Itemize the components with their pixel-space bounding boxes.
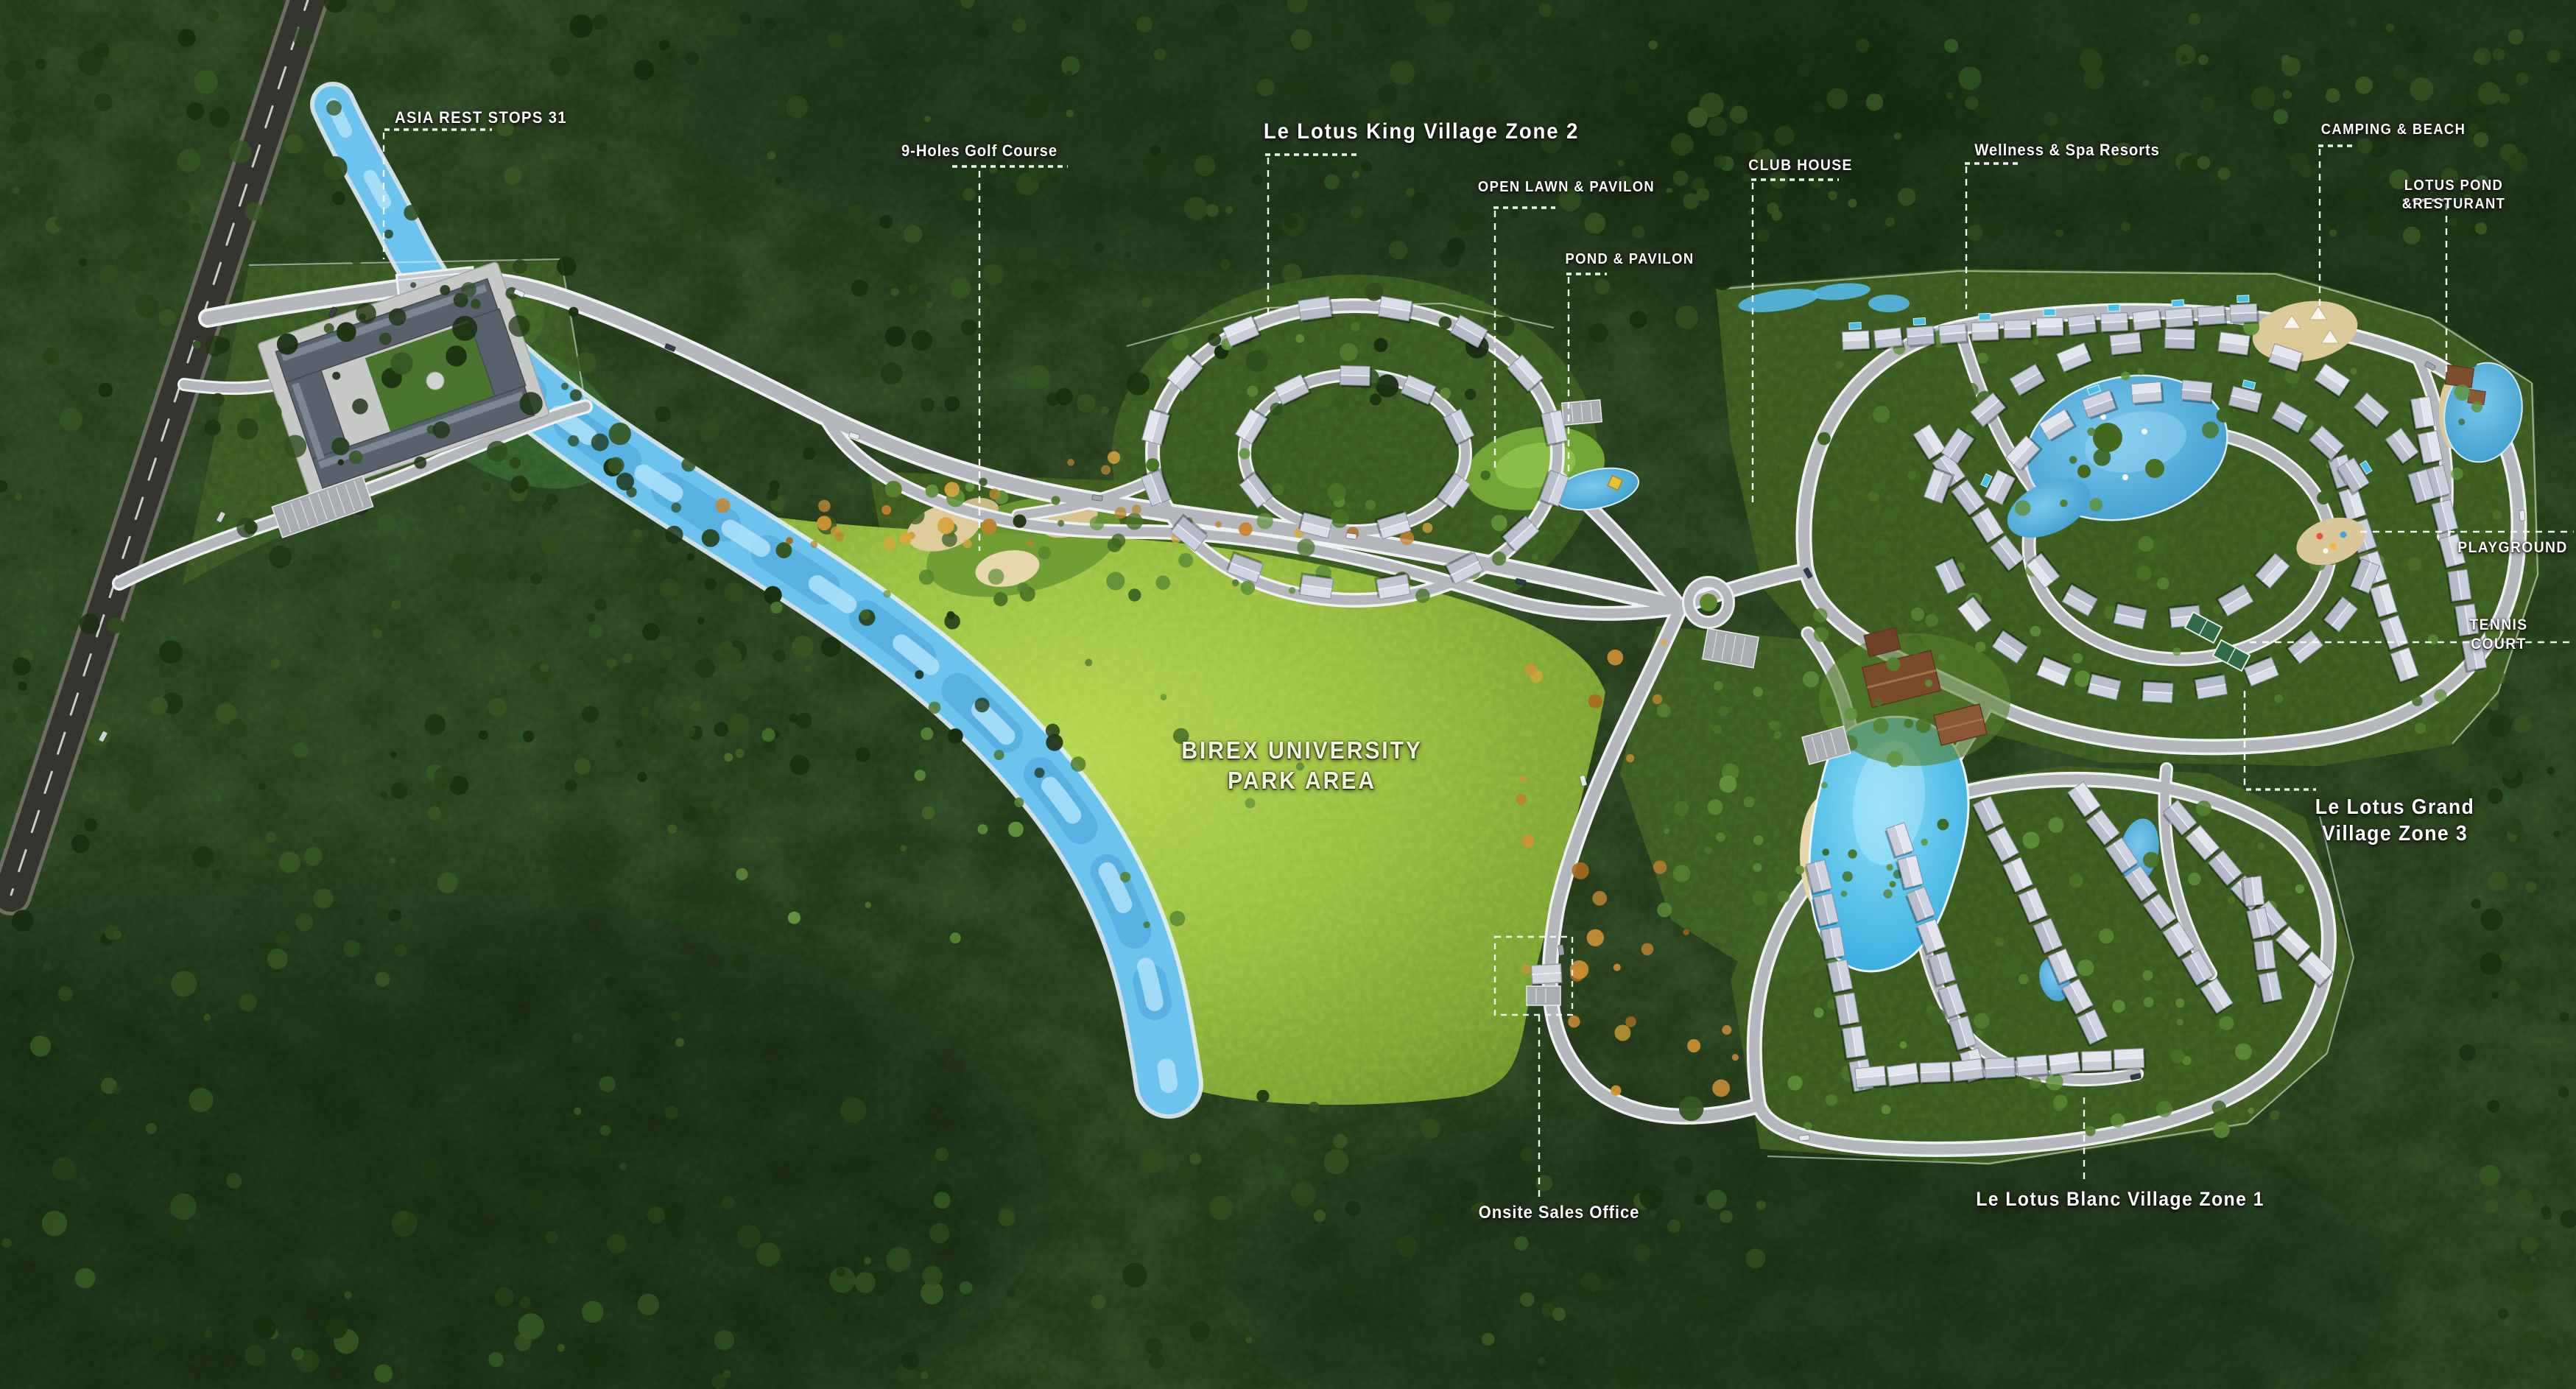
sales-office-callout-box — [1495, 937, 1572, 1015]
annotation-layer — [0, 0, 2576, 1389]
masterplan-rendering: ASIA REST STOPS 319-Holes Golf CourseLe … — [0, 0, 2576, 1389]
